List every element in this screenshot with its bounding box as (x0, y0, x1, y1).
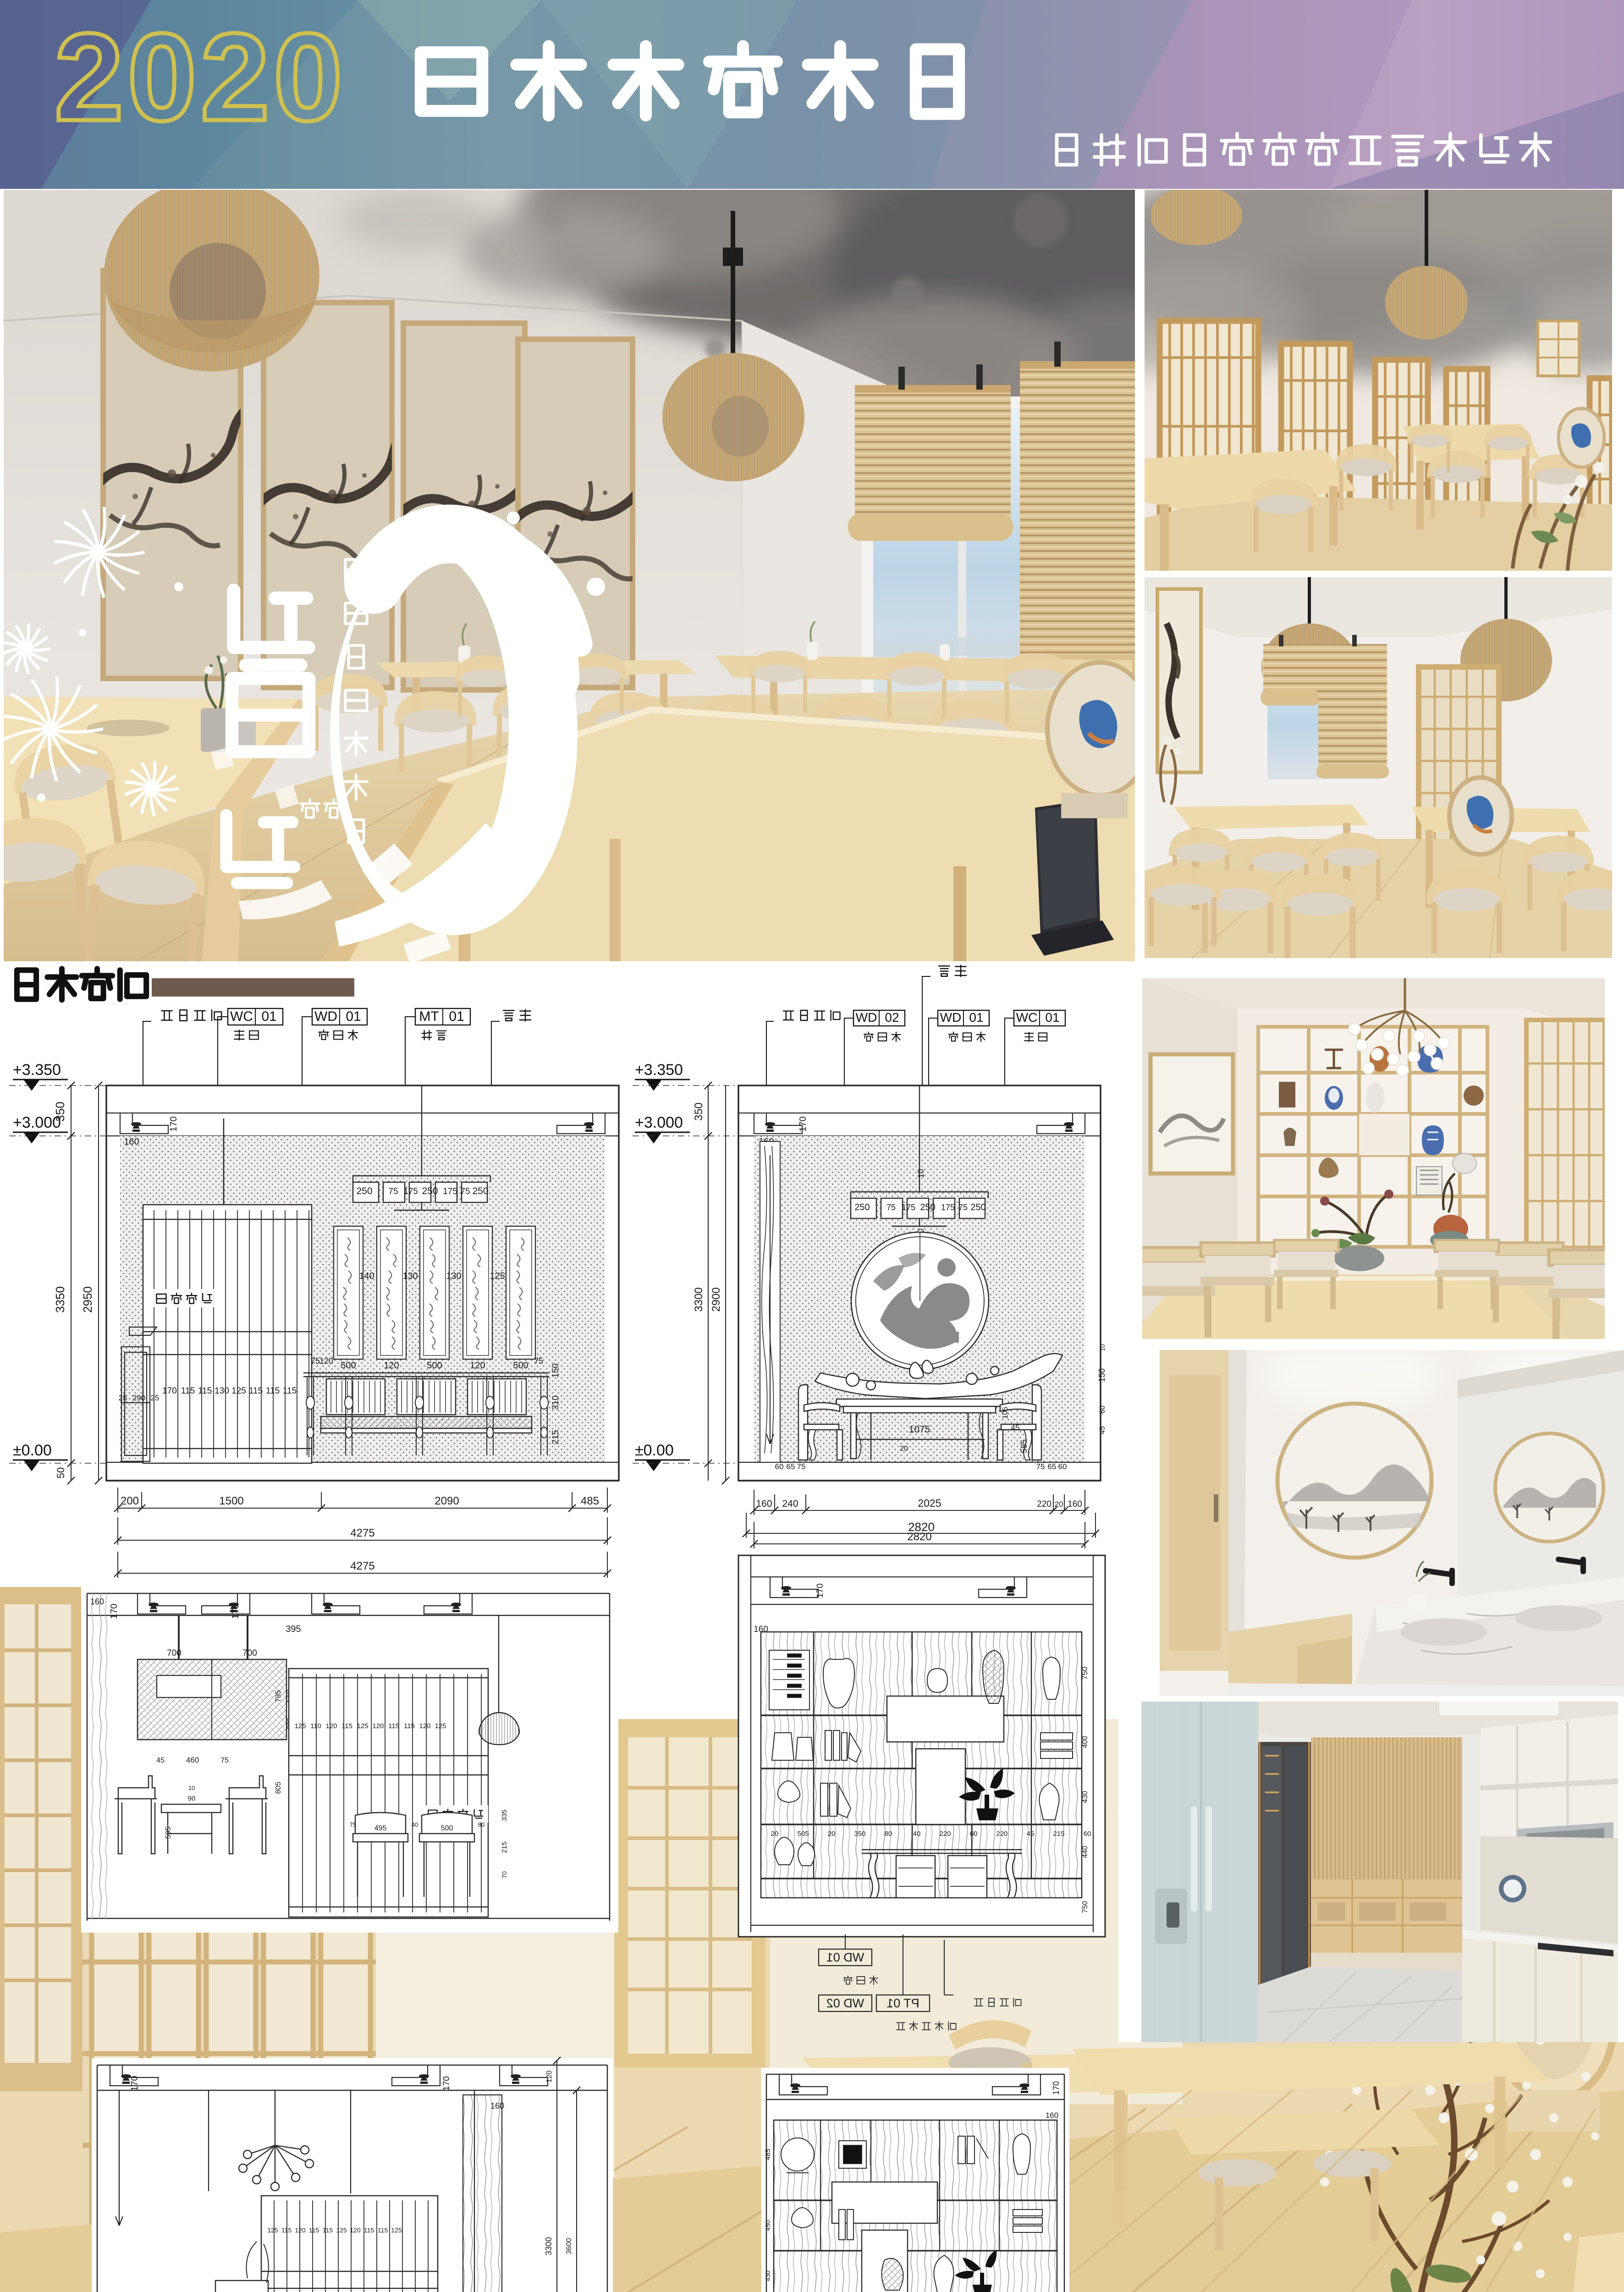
svg-text:125: 125 (231, 1386, 246, 1396)
svg-text:250: 250 (356, 1186, 372, 1196)
svg-text:PT 01: PT 01 (886, 1996, 919, 2010)
svg-text:65: 65 (787, 1462, 795, 1471)
svg-text:170: 170 (442, 2076, 451, 2091)
svg-text:220: 220 (996, 1830, 1007, 1838)
svg-text:430: 430 (1081, 1791, 1089, 1803)
svg-text:175: 175 (443, 1187, 457, 1196)
svg-text:125: 125 (294, 1722, 306, 1730)
svg-text:595: 595 (165, 1827, 172, 1839)
svg-text:4275: 4275 (350, 1527, 374, 1539)
svg-text:MT: MT (419, 1009, 439, 1024)
svg-text:45: 45 (1011, 1423, 1020, 1432)
svg-text:+3.000: +3.000 (635, 1114, 683, 1131)
svg-text:130: 130 (215, 1386, 229, 1396)
svg-text:01: 01 (261, 1009, 276, 1024)
svg-text:110: 110 (310, 1722, 321, 1730)
svg-text:160: 160 (124, 1137, 139, 1147)
svg-text:750: 750 (1081, 1901, 1089, 1913)
svg-text:250: 250 (422, 1186, 438, 1196)
svg-text:60: 60 (1058, 1462, 1067, 1471)
svg-text:170: 170 (231, 1603, 241, 1619)
svg-text:160: 160 (1046, 2111, 1058, 2120)
svg-text:01: 01 (346, 1009, 361, 1024)
svg-text:WD 01: WD 01 (826, 1950, 864, 1964)
svg-text:115: 115 (181, 1386, 195, 1396)
svg-text:310: 310 (551, 1395, 561, 1410)
svg-text:80: 80 (478, 1821, 484, 1828)
svg-text:80: 80 (885, 1830, 892, 1838)
svg-text:430: 430 (764, 2270, 771, 2281)
svg-text:3300: 3300 (544, 2237, 553, 2255)
svg-text:WD: WD (856, 1010, 877, 1025)
svg-text:2020: 2020 (54, 7, 346, 147)
svg-text:40: 40 (412, 1821, 418, 1828)
svg-text:65: 65 (1048, 1462, 1057, 1471)
svg-text:40: 40 (913, 1830, 921, 1838)
svg-text:220: 220 (1037, 1499, 1051, 1509)
svg-text:75: 75 (1036, 1462, 1045, 1471)
svg-text:WD: WD (940, 1010, 962, 1025)
svg-text:60: 60 (1099, 1405, 1107, 1414)
svg-text:505: 505 (797, 1830, 809, 1838)
svg-text:2025: 2025 (918, 1497, 941, 1509)
svg-text:750: 750 (1080, 1667, 1089, 1680)
svg-text:175: 175 (403, 1187, 418, 1196)
svg-text:50: 50 (55, 1467, 66, 1478)
svg-text:2820: 2820 (908, 1520, 935, 1534)
svg-text:170: 170 (798, 1116, 808, 1131)
svg-text:220: 220 (939, 1830, 951, 1838)
svg-text:170: 170 (130, 2076, 140, 2091)
svg-text:45: 45 (1027, 1830, 1035, 1838)
svg-text:115: 115 (198, 1386, 212, 1396)
svg-text:500: 500 (341, 1361, 356, 1371)
svg-text:460: 460 (186, 1756, 199, 1764)
svg-text:170: 170 (169, 1116, 179, 1131)
svg-text:170: 170 (1051, 2081, 1061, 2095)
svg-text:150: 150 (551, 1363, 561, 1378)
svg-text:120: 120 (372, 1722, 384, 1730)
svg-text:WC: WC (230, 1009, 253, 1024)
svg-text:25: 25 (151, 1394, 160, 1402)
svg-text:170: 170 (162, 1386, 177, 1396)
svg-text:3600: 3600 (565, 2238, 573, 2254)
svg-text:500: 500 (427, 1361, 442, 1371)
svg-text:120: 120 (384, 1361, 399, 1371)
svg-text:160: 160 (1068, 1499, 1082, 1509)
svg-text:2950: 2950 (81, 1286, 94, 1313)
svg-text:2900: 2900 (710, 1287, 722, 1311)
svg-text:60: 60 (1084, 1830, 1091, 1838)
svg-text:335: 335 (501, 1809, 508, 1821)
svg-text:175: 175 (902, 1203, 915, 1212)
svg-text:170: 170 (815, 1583, 825, 1598)
svg-text:115: 115 (309, 2226, 319, 2234)
svg-text:125: 125 (357, 1722, 368, 1730)
svg-text:240: 240 (782, 1499, 798, 1509)
svg-text:115: 115 (281, 2226, 292, 2234)
svg-text:395: 395 (286, 1624, 301, 1634)
svg-text:495: 495 (374, 1824, 387, 1832)
svg-text:120: 120 (470, 1361, 485, 1371)
svg-text:175: 175 (941, 1203, 955, 1212)
svg-text:120: 120 (295, 2226, 306, 2234)
svg-text:200: 200 (121, 1495, 139, 1507)
svg-text:130: 130 (446, 1271, 461, 1281)
svg-text:500: 500 (441, 1824, 453, 1832)
svg-text:595: 595 (1019, 1439, 1029, 1453)
svg-text:120: 120 (419, 1722, 430, 1730)
svg-text:75: 75 (220, 1757, 229, 1764)
svg-text:1500: 1500 (219, 1495, 243, 1507)
svg-text:3350: 3350 (53, 1286, 67, 1313)
svg-text:01: 01 (449, 1009, 464, 1024)
svg-text:795: 795 (275, 1690, 282, 1702)
svg-text:2090: 2090 (435, 1495, 459, 1507)
svg-text:120: 120 (350, 2226, 361, 2234)
svg-text:160: 160 (90, 1597, 104, 1606)
svg-text:3300: 3300 (693, 1287, 705, 1311)
svg-text:4275: 4275 (350, 1560, 374, 1572)
svg-text:90: 90 (188, 1795, 196, 1802)
svg-text:20: 20 (828, 1830, 836, 1838)
svg-text:450: 450 (764, 2220, 771, 2231)
svg-text:75: 75 (797, 1462, 806, 1471)
svg-text:75: 75 (388, 1187, 398, 1196)
svg-text:01: 01 (969, 1010, 983, 1025)
svg-text:440: 440 (1081, 1846, 1089, 1858)
svg-text:45: 45 (156, 1757, 165, 1764)
svg-text:105: 105 (1002, 1407, 1009, 1419)
svg-text:215: 215 (551, 1430, 561, 1444)
svg-text:115: 115 (266, 1386, 280, 1396)
svg-text:805: 805 (275, 1782, 282, 1794)
svg-text:75: 75 (886, 1203, 896, 1212)
svg-text:125: 125 (490, 1271, 505, 1281)
svg-text:25: 25 (119, 1394, 127, 1402)
svg-text:250: 250 (472, 1186, 488, 1196)
svg-text:1075: 1075 (909, 1424, 930, 1435)
svg-text:115: 115 (378, 2226, 388, 2234)
svg-text:115: 115 (388, 1722, 399, 1730)
svg-text:WC: WC (1016, 1010, 1038, 1025)
svg-text:115: 115 (364, 2226, 374, 2234)
svg-text:01: 01 (1045, 1010, 1059, 1025)
svg-text:350: 350 (854, 1830, 865, 1838)
svg-text:160: 160 (756, 1499, 772, 1509)
svg-text:485: 485 (764, 2149, 772, 2160)
svg-text:10: 10 (1099, 1344, 1106, 1351)
svg-text:60: 60 (775, 1462, 784, 1471)
svg-text:160: 160 (490, 2101, 504, 2110)
svg-text:290: 290 (132, 1394, 145, 1402)
svg-text:130: 130 (402, 1271, 418, 1281)
svg-text:75: 75 (460, 1187, 470, 1196)
svg-text:75: 75 (958, 1203, 968, 1212)
svg-text:215: 215 (501, 1841, 508, 1853)
svg-text:125: 125 (267, 2226, 278, 2234)
svg-text:125: 125 (336, 2226, 347, 2234)
svg-text:115: 115 (341, 1722, 352, 1730)
svg-text:+3.350: +3.350 (635, 1061, 683, 1079)
svg-text:115: 115 (323, 2226, 333, 2234)
svg-text:20: 20 (771, 1830, 779, 1838)
svg-text:45: 45 (1099, 1426, 1107, 1434)
svg-text:120: 120 (545, 2071, 553, 2083)
svg-text:350: 350 (693, 1102, 705, 1121)
svg-text:±0.00: ±0.00 (635, 1442, 674, 1459)
svg-text:WD 02: WD 02 (826, 1996, 864, 2010)
svg-text:250: 250 (854, 1202, 870, 1212)
svg-text:250: 250 (970, 1202, 985, 1212)
svg-text:70: 70 (501, 1871, 508, 1879)
svg-text:10: 10 (188, 1785, 195, 1791)
svg-text:150: 150 (1097, 1368, 1107, 1382)
svg-text:700: 700 (242, 1648, 257, 1658)
svg-text:140: 140 (359, 1271, 374, 1281)
svg-text:485: 485 (581, 1495, 599, 1507)
svg-text:115: 115 (249, 1386, 263, 1396)
svg-text:10: 10 (916, 1169, 925, 1178)
svg-text:115: 115 (283, 1386, 297, 1396)
svg-text:60: 60 (970, 1830, 978, 1838)
svg-text:125: 125 (435, 1722, 446, 1730)
svg-text:115: 115 (404, 1722, 415, 1730)
svg-text:250: 250 (920, 1202, 935, 1212)
svg-text:75: 75 (534, 1356, 543, 1366)
svg-text:20: 20 (900, 1445, 908, 1453)
svg-text:170: 170 (109, 1603, 119, 1619)
svg-text:120: 120 (319, 1356, 333, 1366)
svg-text:75: 75 (350, 1821, 356, 1828)
svg-text:20: 20 (1055, 1500, 1063, 1509)
svg-text:120: 120 (325, 1722, 337, 1730)
svg-text:215: 215 (1053, 1830, 1064, 1838)
svg-text:350: 350 (53, 1102, 67, 1121)
svg-text:75: 75 (311, 1356, 320, 1366)
svg-text:±0.00: ±0.00 (13, 1442, 52, 1459)
svg-text:400: 400 (1081, 1736, 1089, 1748)
svg-text:02: 02 (885, 1010, 899, 1025)
svg-text:WD: WD (314, 1009, 337, 1024)
svg-text:125: 125 (391, 2226, 402, 2234)
svg-text:+3.350: +3.350 (13, 1061, 61, 1079)
svg-text:500: 500 (513, 1361, 528, 1371)
